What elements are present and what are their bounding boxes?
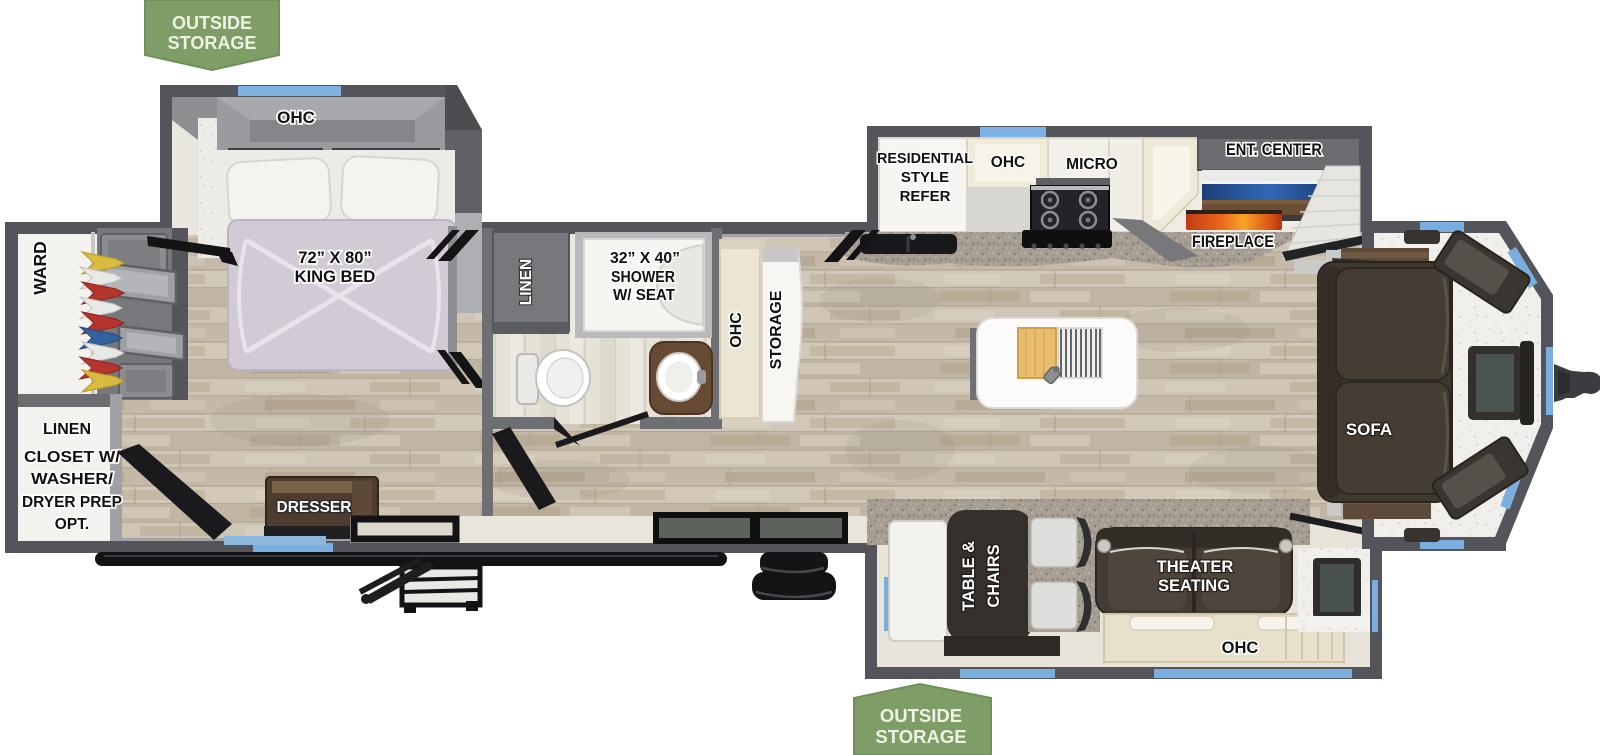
svg-text:W/ SEAT: W/ SEAT — [613, 287, 676, 304]
svg-text:REFER: REFER — [900, 188, 951, 205]
svg-text:STORAGE: STORAGE — [875, 726, 966, 747]
svg-text:ENT. CENTER: ENT. CENTER — [1226, 141, 1322, 159]
svg-text:KING BED: KING BED — [295, 268, 376, 286]
svg-text:OHC: OHC — [728, 312, 745, 348]
svg-text:RESIDENTIAL: RESIDENTIAL — [877, 150, 973, 167]
svg-text:DRESSER: DRESSER — [277, 499, 352, 516]
svg-text:DRYER PREP: DRYER PREP — [22, 494, 122, 511]
svg-text:72” X 80”: 72” X 80” — [298, 249, 371, 267]
svg-text:SEATING: SEATING — [1158, 577, 1230, 595]
svg-text:OHC: OHC — [1222, 639, 1259, 657]
svg-text:STORAGE: STORAGE — [768, 290, 785, 369]
svg-text:WASHER/: WASHER/ — [31, 471, 114, 488]
svg-text:THEATER: THEATER — [1157, 558, 1234, 576]
svg-text:TABLE &: TABLE & — [960, 541, 978, 611]
svg-text:LINEN: LINEN — [43, 421, 91, 438]
svg-text:SHOWER: SHOWER — [611, 269, 675, 286]
svg-text:STORAGE: STORAGE — [168, 33, 257, 53]
svg-text:LINEN: LINEN — [518, 259, 535, 306]
svg-text:OHC: OHC — [991, 154, 1025, 171]
svg-text:OUTSIDE: OUTSIDE — [880, 705, 962, 726]
svg-text:32” X 40”: 32” X 40” — [610, 250, 680, 267]
svg-text:OHC: OHC — [277, 108, 315, 127]
svg-text:OPT.: OPT. — [55, 516, 89, 533]
svg-text:MICRO: MICRO — [1066, 156, 1118, 173]
svg-text:OUTSIDE: OUTSIDE — [172, 13, 252, 33]
svg-text:CLOSET W/: CLOSET W/ — [24, 449, 121, 466]
svg-text:SOFA: SOFA — [1346, 420, 1392, 439]
svg-text:STYLE: STYLE — [901, 169, 949, 186]
svg-text:FIREPLACE: FIREPLACE — [1192, 233, 1274, 251]
svg-text:CHAIRS: CHAIRS — [985, 544, 1003, 607]
svg-text:WARD: WARD — [30, 241, 50, 294]
